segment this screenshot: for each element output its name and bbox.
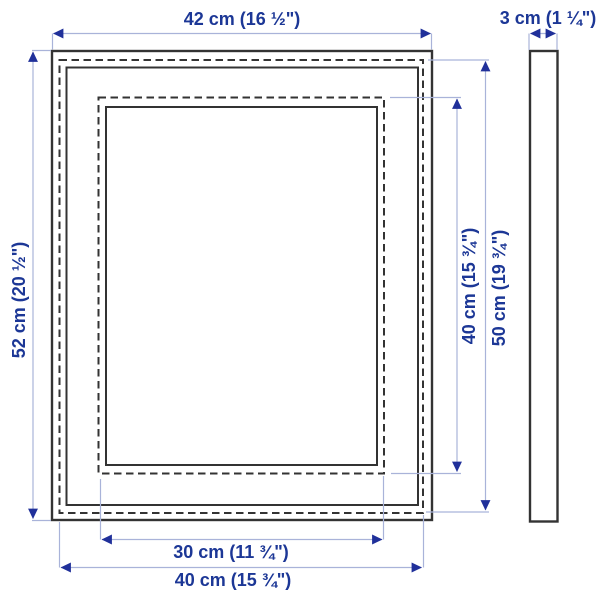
picture-height-label: 40 cm (15 ¾")	[459, 228, 479, 345]
outer-height-label: 52 cm (20 ½")	[9, 242, 29, 359]
picture-area-dashed-outline	[99, 98, 385, 474]
frame-front-view	[52, 51, 432, 520]
depth-label: 3 cm (1 ¼")	[500, 8, 597, 28]
dimension-outer-height: 52 cm (20 ½")	[9, 51, 51, 521]
frame-back-panel-dashed-outline	[60, 60, 424, 513]
back-width-label: 40 cm (15 ¾")	[175, 570, 292, 590]
picture-width-label: 30 cm (11 ¾")	[173, 542, 289, 562]
frame-side-view	[530, 51, 558, 522]
outer-width-label: 42 cm (16 ½")	[184, 9, 301, 29]
mat-opening-edge	[106, 107, 377, 465]
dimension-depth: 3 cm (1 ¼")	[500, 8, 597, 50]
side-profile-edge	[530, 51, 558, 522]
dimension-outer-width: 42 cm (16 ½")	[53, 9, 432, 50]
frame-inner-border-edge	[67, 68, 419, 506]
frame-dimension-diagram: 42 cm (16 ½") 3 cm (1 ¼") 52 cm (20 ½") …	[0, 0, 600, 600]
frame-outer-edge	[52, 51, 432, 520]
dimension-picture-height: 40 cm (15 ¾")	[390, 98, 479, 474]
back-height-label: 50 cm (19 ¾")	[489, 230, 509, 347]
